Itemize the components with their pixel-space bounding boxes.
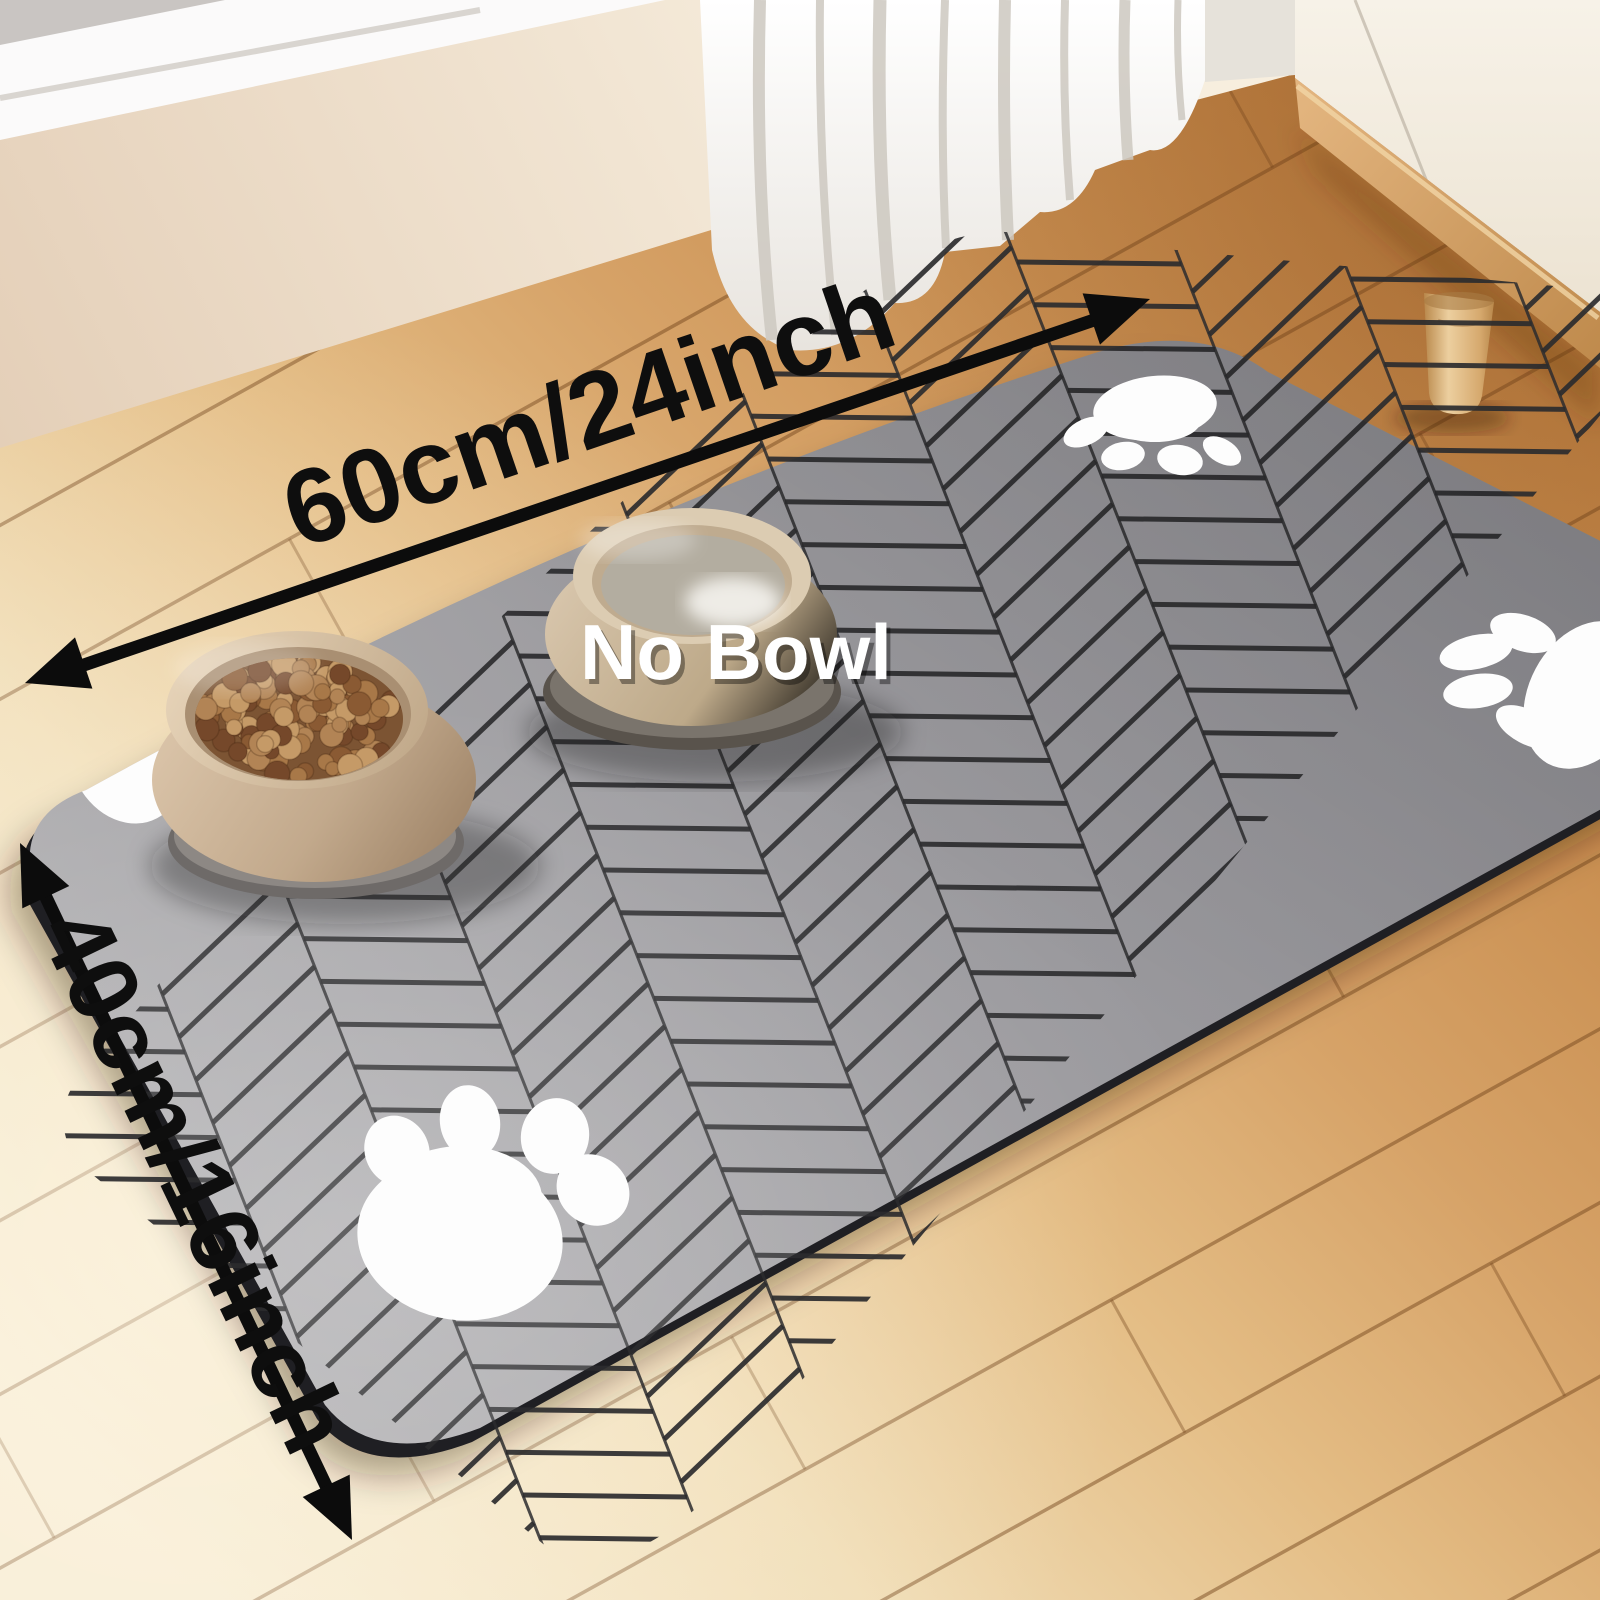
kibble-piece (257, 736, 274, 753)
kibble-piece (347, 692, 371, 716)
kibble-bowl-highlight (173, 642, 317, 694)
kibble-piece (351, 723, 368, 740)
scene-canvas: 60cm/24inch 40cm/16inch No Bowl No Bowl (0, 0, 1600, 1600)
no-bowl-label: No Bowl (580, 608, 892, 696)
kibble-piece (332, 717, 347, 732)
kibble-piece (229, 743, 248, 762)
leg-top-shade (1424, 292, 1494, 310)
cabinet-side-panel (1205, 0, 1295, 82)
kibble-piece (330, 689, 345, 704)
product-photo: 60cm/24inch 40cm/16inch No Bowl No Bowl (0, 0, 1600, 1600)
kibble-piece (371, 699, 389, 717)
kibble-piece (226, 719, 242, 735)
water-bowl-sheen (580, 520, 696, 560)
kibble-piece (274, 707, 294, 727)
kibble-piece (330, 664, 351, 685)
kibble-piece (314, 684, 330, 700)
